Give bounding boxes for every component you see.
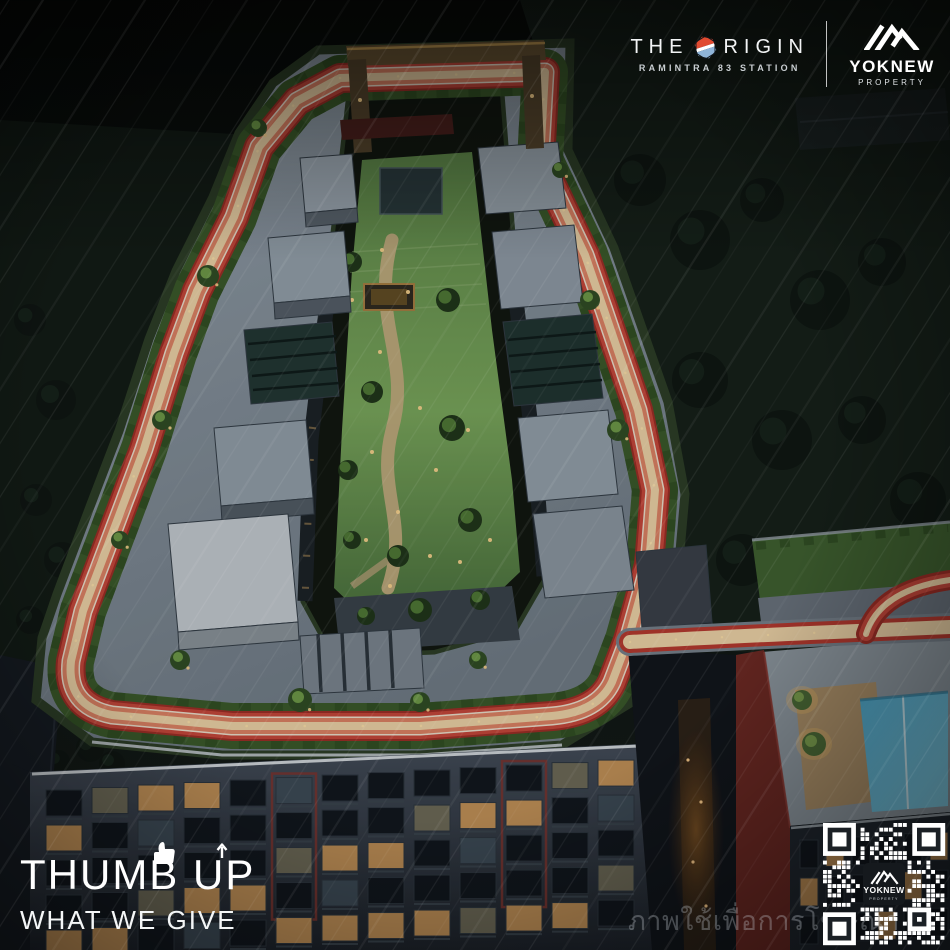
thumbs-up-icon [151,841,177,865]
logo-divider [826,21,827,87]
aerial-render-condo [0,0,950,950]
qr-code: YOKNEW PROPERTY [821,821,947,947]
qr-center-name: YOKNEW [863,885,905,895]
origin-name-prefix: THE [630,36,688,59]
brand-lockup: THE RIGIN RAMINTRA 83 STATION [630,20,940,87]
yoknew-division: PROPERTY [844,78,940,87]
yoknew-logo: YOKNEW PROPERTY [844,20,940,87]
slogan: THUMB UP WHAT WE GIVE [20,854,255,936]
qr-center-division: PROPERTY [869,897,898,901]
arrow-up-icon [216,843,228,859]
origin-name-suffix: RIGIN [723,36,809,59]
yoknew-name: YOKNEW [844,57,940,77]
yoknew-mountain-icon [864,20,920,50]
slogan-line2: WHAT WE GIVE [20,905,255,936]
promo-image: THE RIGIN RAMINTRA 83 STATION [0,0,950,950]
origin-station-label: RAMINTRA 83 STATION [630,63,809,73]
origin-hexagon-icon [694,35,717,60]
the-origin-logo: THE RIGIN RAMINTRA 83 STATION [630,35,809,73]
